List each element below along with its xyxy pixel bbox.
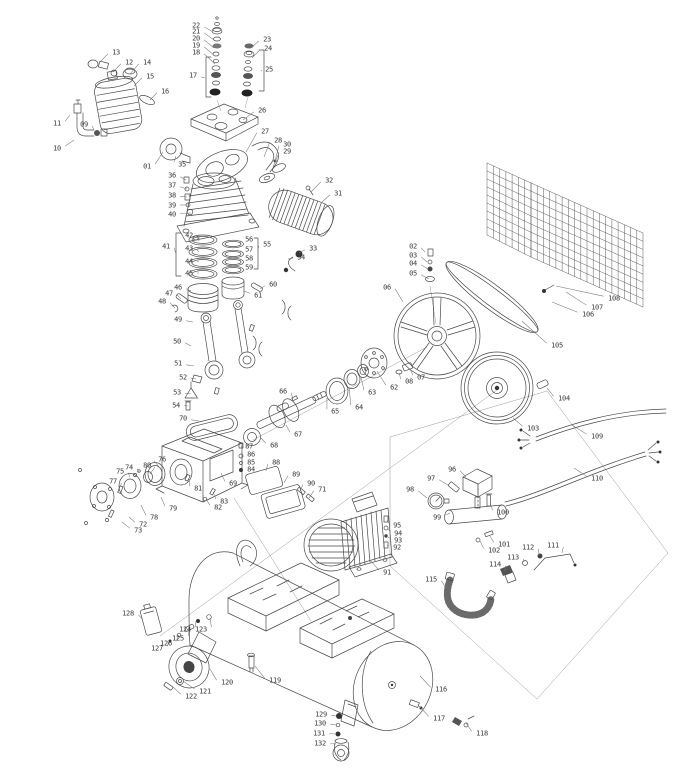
guard-mesh-panel: [487, 163, 531, 257]
part-label-106: 106: [582, 310, 594, 318]
part-label-07: 07: [417, 373, 425, 381]
part-label-13: 13: [112, 48, 120, 56]
part-label-34: 34: [297, 253, 305, 261]
part-label-27: 27: [261, 127, 269, 135]
leader-line-70: [191, 420, 199, 421]
leader-line-102: [480, 541, 484, 548]
filter-fittings: [88, 60, 156, 107]
part-label-95: 95: [393, 521, 401, 529]
leader-line-78: [141, 505, 146, 515]
part-label-127: 127: [151, 644, 163, 652]
flywheel: [394, 293, 480, 379]
part-label-04: 04: [409, 259, 417, 267]
part-label-108: 108: [608, 294, 620, 302]
drain-pipe-assembly: [74, 100, 107, 136]
part-label-105: 105: [551, 341, 563, 349]
valve-stack-right: [242, 44, 255, 97]
part-label-109: 109: [591, 432, 603, 440]
piston-b: [222, 277, 244, 299]
part-label-02: 02: [409, 242, 417, 250]
leader-line-64: [349, 387, 351, 405]
part-label-128: 128: [122, 609, 134, 617]
label-bracket-55: [254, 238, 258, 269]
leader-line-25: [261, 70, 262, 71]
part-label-103: 103: [527, 424, 539, 432]
part-label-08: 08: [405, 377, 413, 385]
leader-line-128: [138, 615, 143, 620]
part-label-58: 58: [245, 254, 253, 262]
part-label-79: 79: [169, 504, 177, 512]
part-label-66: 66: [279, 387, 287, 395]
leader-line-11: [65, 115, 70, 121]
leader-line-101: [490, 536, 494, 542]
leader-line-50: [185, 343, 191, 346]
diagram-canvas: 1312141516110910013522212019182324172526…: [0, 0, 686, 768]
part-label-117: 117: [433, 714, 445, 722]
leader-line-96: [460, 471, 466, 477]
crankcase: [156, 429, 248, 502]
leader-line-01: [155, 152, 163, 164]
part-label-35: 35: [178, 160, 186, 168]
part-label-44: 44: [185, 257, 193, 265]
part-label-74: 74: [125, 463, 133, 471]
part-label-12: 12: [125, 58, 133, 66]
part-label-99: 99: [433, 513, 441, 521]
part-label-25: 25: [265, 65, 273, 73]
part-label-52: 52: [179, 373, 187, 381]
leader-line-31: [322, 195, 330, 202]
leader-line-06: [395, 289, 403, 302]
leader-line-106: [552, 302, 578, 312]
part-label-80: 80: [143, 461, 151, 469]
part-label-101: 101: [498, 540, 510, 548]
leader-line-32: [311, 182, 321, 192]
part-label-10: 10: [53, 144, 61, 152]
part-label-67: 67: [294, 430, 302, 438]
leader-line-03: [421, 257, 427, 262]
part-label-26: 26: [258, 106, 266, 114]
leader-line-09: [92, 126, 94, 130]
part-label-113: 113: [507, 553, 519, 561]
leader-line-28: [264, 142, 270, 157]
leader-line-105: [522, 321, 547, 343]
part-label-51: 51: [174, 359, 182, 367]
leader-line-67: [286, 425, 290, 432]
cylinder-head: [191, 104, 258, 141]
cover-plates-88-89: [245, 466, 314, 519]
leader-line-100: [490, 503, 493, 510]
leader-line-103: [513, 418, 523, 426]
part-label-115: 115: [425, 575, 437, 583]
leader-line-27: [246, 133, 257, 152]
part-label-29: 29: [283, 147, 291, 155]
part-label-114: 114: [489, 560, 501, 568]
exploded-parts-diagram: 1312141516110910013522212019182324172526…: [0, 0, 686, 768]
drain-fittings: [409, 700, 474, 727]
leader-line-122: [173, 687, 181, 694]
leader-line-21: [204, 33, 214, 40]
leader-line-52: [191, 378, 196, 379]
wrist-pin-a: [172, 293, 188, 312]
switch-fittings: [428, 481, 577, 583]
part-label-37: 37: [168, 181, 176, 189]
part-label-68: 68: [270, 441, 278, 449]
part-label-97: 97: [427, 474, 435, 482]
part-label-96: 96: [448, 465, 456, 473]
part-label-116: 116: [435, 685, 447, 693]
part-label-75: 75: [116, 467, 124, 475]
braided-hose: [445, 572, 495, 615]
part-label-36: 36: [168, 171, 176, 179]
part-label-57: 57: [245, 245, 253, 253]
leader-line-24: [252, 50, 260, 58]
flywheel-bolt-stack: [426, 249, 435, 282]
part-label-70: 70: [179, 414, 187, 422]
part-label-82: 82: [214, 503, 222, 511]
part-label-01: 01: [143, 162, 151, 170]
part-label-63: 63: [368, 388, 376, 396]
leader-line-69: [221, 473, 225, 481]
part-label-48: 48: [158, 297, 166, 305]
leader-line-04: [421, 265, 428, 269]
leader-line-07: [410, 369, 413, 375]
part-label-90: 90: [307, 479, 315, 487]
part-label-88: 88: [272, 458, 280, 466]
leader-line-68: [261, 438, 266, 443]
leader-line-22: [204, 27, 213, 32]
part-label-06: 06: [383, 283, 391, 291]
leader-line-89: [284, 476, 288, 483]
leader-line-111: [562, 547, 563, 553]
leader-line-107: [566, 292, 587, 305]
leader-line-16: [150, 93, 157, 100]
part-label-104: 104: [558, 394, 570, 402]
part-label-65: 65: [331, 407, 339, 415]
part-label-47: 47: [165, 289, 173, 297]
leader-line-20: [204, 40, 214, 48]
leader-line-73: [122, 522, 130, 528]
part-label-122: 122: [185, 692, 197, 700]
part-label-120: 120: [221, 678, 233, 686]
part-label-05: 05: [409, 269, 417, 277]
part-label-98: 98: [406, 485, 414, 493]
pressure-switch: [463, 469, 492, 508]
leader-line-123: [210, 618, 211, 627]
part-label-32: 32: [325, 176, 333, 184]
leader-line-93: [388, 537, 390, 538]
part-label-118: 118: [476, 729, 488, 737]
part-label-43: 43: [185, 244, 193, 252]
pulley-key: [536, 379, 549, 389]
part-label-121: 121: [199, 687, 211, 695]
part-label-91: 91: [383, 568, 391, 576]
part-label-55: 55: [263, 240, 271, 248]
label-bracket-41: [176, 233, 181, 276]
leader-line-116: [420, 676, 431, 687]
part-label-17: 17: [189, 71, 197, 79]
part-label-33: 33: [309, 244, 317, 252]
leader-line-02: [421, 248, 425, 252]
leader-line-15: [134, 78, 142, 86]
part-label-23: 23: [263, 35, 271, 43]
leader-line-13: [100, 54, 108, 62]
part-label-89: 89: [292, 470, 300, 478]
part-label-107: 107: [591, 303, 603, 311]
part-label-92: 92: [393, 543, 401, 551]
part-label-49: 49: [174, 315, 182, 323]
ring-stack-a: [189, 235, 217, 279]
leader-line-10: [65, 140, 74, 146]
construction-lines: [160, 97, 668, 699]
part-label-100: 100: [497, 508, 509, 516]
part-label-123: 123: [195, 625, 207, 633]
part-label-81: 81: [194, 484, 202, 492]
valve-stack-left: [210, 17, 223, 96]
part-label-87: 87: [245, 442, 253, 450]
leader-line-97: [439, 480, 448, 485]
part-label-24: 24: [264, 44, 272, 52]
crank-bearings: [244, 348, 413, 446]
part-label-03: 03: [409, 251, 417, 259]
belt-guard-grid: [487, 163, 643, 307]
part-label-39: 39: [168, 201, 176, 209]
part-labels: 1312141516110910013522212019182324172526…: [53, 21, 620, 747]
leader-line-91: [371, 561, 379, 570]
part-label-41: 41: [162, 242, 170, 250]
leader-line-130: [330, 724, 336, 725]
part-label-46: 46: [174, 283, 182, 291]
part-label-84: 84: [247, 465, 255, 473]
part-label-102: 102: [488, 546, 500, 554]
tank-platforms: [228, 563, 394, 658]
part-label-31: 31: [334, 189, 342, 197]
part-label-62: 62: [390, 383, 398, 391]
part-label-59: 59: [245, 263, 253, 271]
leader-line-129: [331, 715, 336, 716]
leader-line-88: [266, 464, 268, 471]
part-label-110: 110: [591, 474, 603, 482]
part-label-78: 78: [150, 513, 158, 521]
part-label-69: 69: [229, 479, 237, 487]
part-label-61: 61: [254, 291, 262, 299]
part-label-14: 14: [143, 58, 151, 66]
exhaust-tube: [252, 142, 287, 184]
part-label-73: 73: [134, 526, 142, 534]
part-label-45: 45: [185, 269, 193, 277]
part-label-131: 131: [313, 729, 325, 737]
crankshaft: [252, 383, 331, 437]
part-label-76: 76: [158, 455, 166, 463]
part-label-111: 111: [547, 541, 559, 549]
leader-line-72: [129, 517, 135, 522]
leader-line-117: [419, 706, 429, 716]
leader-line-51: [186, 365, 194, 366]
part-label-71: 71: [318, 485, 326, 493]
part-label-16: 16: [161, 87, 169, 95]
part-label-38: 38: [168, 191, 176, 199]
piston-a: [188, 284, 218, 313]
leader-line-61: [244, 291, 250, 293]
aftercooler: [264, 186, 337, 240]
leader-line-38: [180, 196, 187, 197]
part-label-132: 132: [314, 739, 326, 747]
part-label-130: 130: [314, 719, 326, 727]
part-label-86: 86: [247, 450, 255, 458]
part-label-40: 40: [168, 210, 176, 218]
leader-line-63: [361, 377, 364, 390]
part-label-11: 11: [53, 119, 61, 127]
leader-line-120: [210, 669, 217, 680]
part-label-54: 54: [172, 401, 180, 409]
leader-line-92: [387, 545, 389, 546]
part-label-53: 53: [173, 388, 181, 396]
electric-motor: [304, 492, 397, 577]
part-label-42: 42: [185, 231, 193, 239]
leader-line-48: [170, 303, 175, 308]
leader-line-113: [523, 559, 524, 562]
part-label-129: 129: [315, 710, 327, 718]
leader-line-98: [418, 491, 427, 498]
part-label-60: 60: [269, 280, 277, 288]
part-label-119: 119: [269, 676, 281, 684]
leader-line-62: [377, 371, 386, 385]
leader-line-12: [113, 64, 121, 72]
part-label-56: 56: [245, 235, 253, 243]
leader-line-79: [161, 497, 165, 506]
leader-line-17: [201, 77, 205, 78]
part-label-15: 15: [146, 72, 154, 80]
leader-line-108: [556, 286, 604, 296]
part-label-18: 18: [192, 48, 200, 56]
part-label-09: 09: [80, 120, 88, 128]
leader-line-49: [186, 321, 193, 322]
leader-line-43: [197, 250, 199, 252]
part-label-50: 50: [173, 337, 181, 345]
connecting-rods: [201, 300, 291, 379]
part-label-77: 77: [109, 477, 117, 485]
intake-filter-silencer: [91, 68, 143, 135]
part-label-112: 112: [522, 543, 534, 551]
leader-line-19: [204, 47, 215, 56]
part-label-64: 64: [355, 403, 363, 411]
part-label-28: 28: [274, 136, 282, 144]
guard-screw: [542, 285, 554, 293]
leader-line-99: [445, 513, 450, 515]
